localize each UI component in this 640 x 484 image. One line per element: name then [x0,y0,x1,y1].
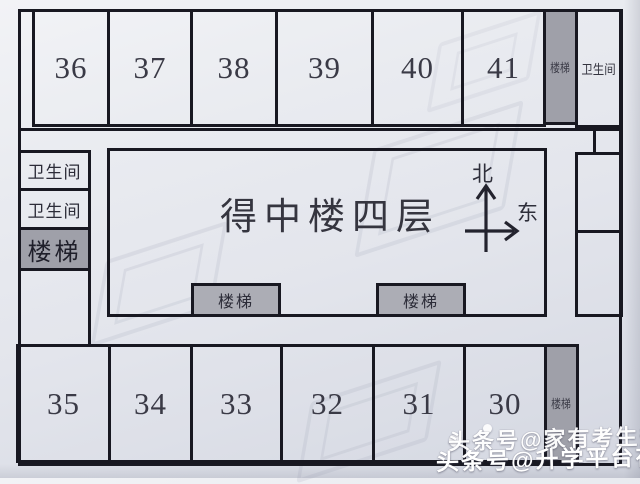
alcove-right-small [593,125,623,155]
room-number: 37 [134,50,167,86]
corridor-wall [18,128,622,131]
room-bottom-2: 33 [190,344,283,463]
overlay-watermark-line2: 头条号@升学平台在线 [436,437,640,478]
stairwell-hall-west: 楼梯 [191,283,281,317]
room-number: 31 [403,386,436,422]
room-right-lower [575,230,623,317]
room-number: 34 [134,386,167,422]
room-top-0: 36 [32,9,110,127]
room-number: 38 [218,50,251,86]
restroom-left-1: 卫生间 [18,150,91,191]
floor-title: 得中楼四层 [170,186,490,240]
stairs-label: 楼梯 [28,232,82,267]
restroom-label: 卫生间 [28,197,82,222]
room-number: 33 [220,386,253,422]
room-top-4: 40 [371,9,464,127]
stairs-label: 楼梯 [552,395,572,412]
room-number: 36 [55,50,88,86]
room-bottom-1: 34 [108,344,193,463]
room-top-5: 41 [461,9,546,127]
stairs-label: 楼梯 [403,288,439,312]
room-top-3: 39 [275,9,374,127]
room-number: 32 [311,386,344,422]
stairwell-hall-east: 楼梯 [376,283,466,317]
room-number: 30 [489,386,522,422]
room-top-1: 37 [107,9,193,127]
room-number: 35 [47,386,80,422]
restroom-top-right: 卫生间 [575,9,623,128]
restroom-label: 卫生间 [28,158,82,183]
stairs-label: 楼梯 [218,288,254,312]
compass-arrows-icon [458,180,530,256]
room-number: 40 [401,50,434,86]
room-number: 39 [308,50,341,86]
room-top-2: 38 [190,9,278,127]
floor-plan-photo: 36 37 38 39 40 41 楼梯 卫生间 卫生间 卫生间 楼梯 得中楼四… [0,0,640,478]
photo-edge-shadow [624,0,640,478]
room-bottom-3: 32 [280,344,375,463]
stairwell-top-right: 楼梯 [543,9,578,125]
room-number: 41 [487,50,520,86]
restroom-label: 卫生间 [582,59,616,78]
utility-room-left [18,268,91,347]
stairs-label: 楼梯 [551,59,571,76]
stairwell-left: 楼梯 [18,227,91,271]
room-bottom-0: 35 [16,344,111,463]
room-right-upper [575,152,623,233]
restroom-left-2: 卫生间 [18,188,91,230]
